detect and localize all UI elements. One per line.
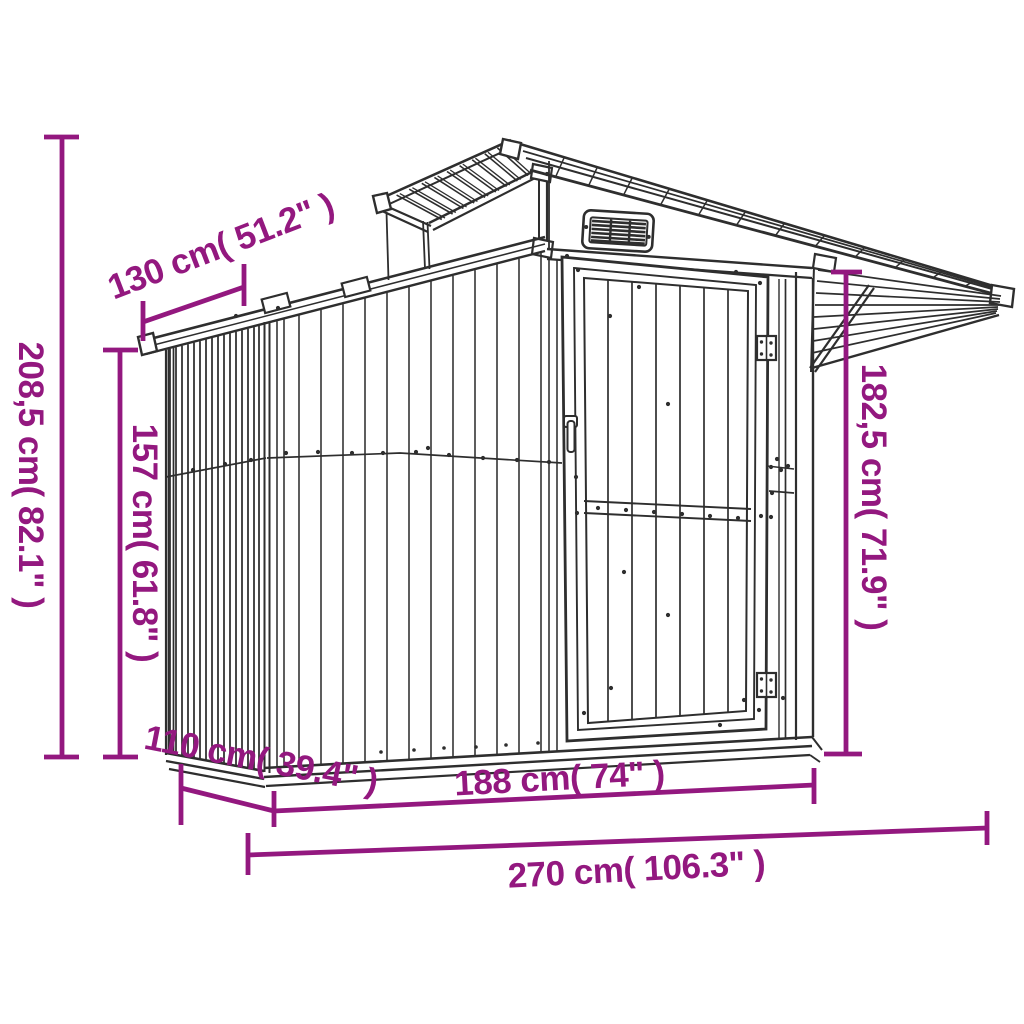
svg-text:182,5 cm( 71.9" ): 182,5 cm( 71.9" ) [854, 364, 893, 631]
svg-text:208,5 cm( 82.1" ): 208,5 cm( 82.1" ) [11, 342, 50, 609]
svg-text:157 cm( 61.8" ): 157 cm( 61.8" ) [125, 424, 164, 663]
